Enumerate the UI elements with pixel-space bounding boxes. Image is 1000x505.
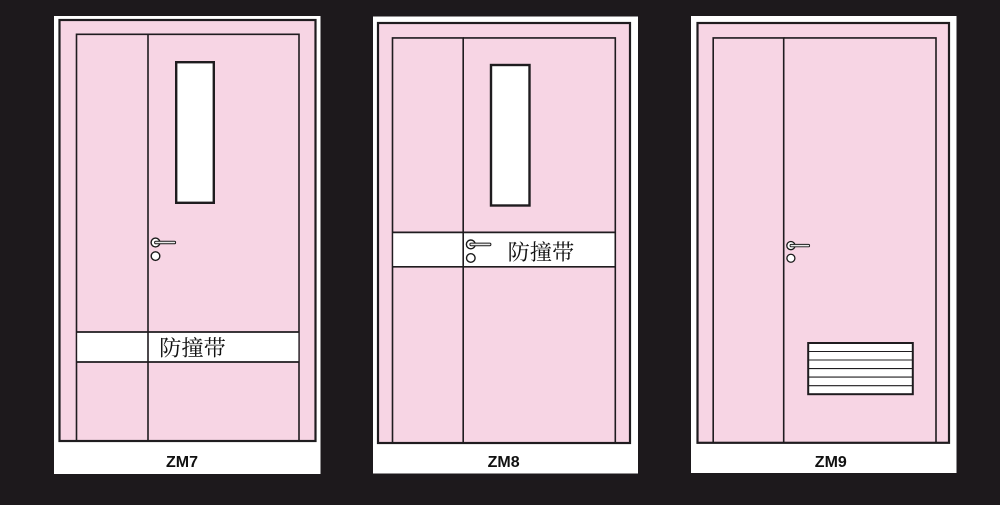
svg-text:ZM9: ZM9	[815, 454, 847, 471]
svg-text:ZM7: ZM7	[166, 454, 198, 471]
svg-text:ZM8: ZM8	[488, 454, 520, 471]
